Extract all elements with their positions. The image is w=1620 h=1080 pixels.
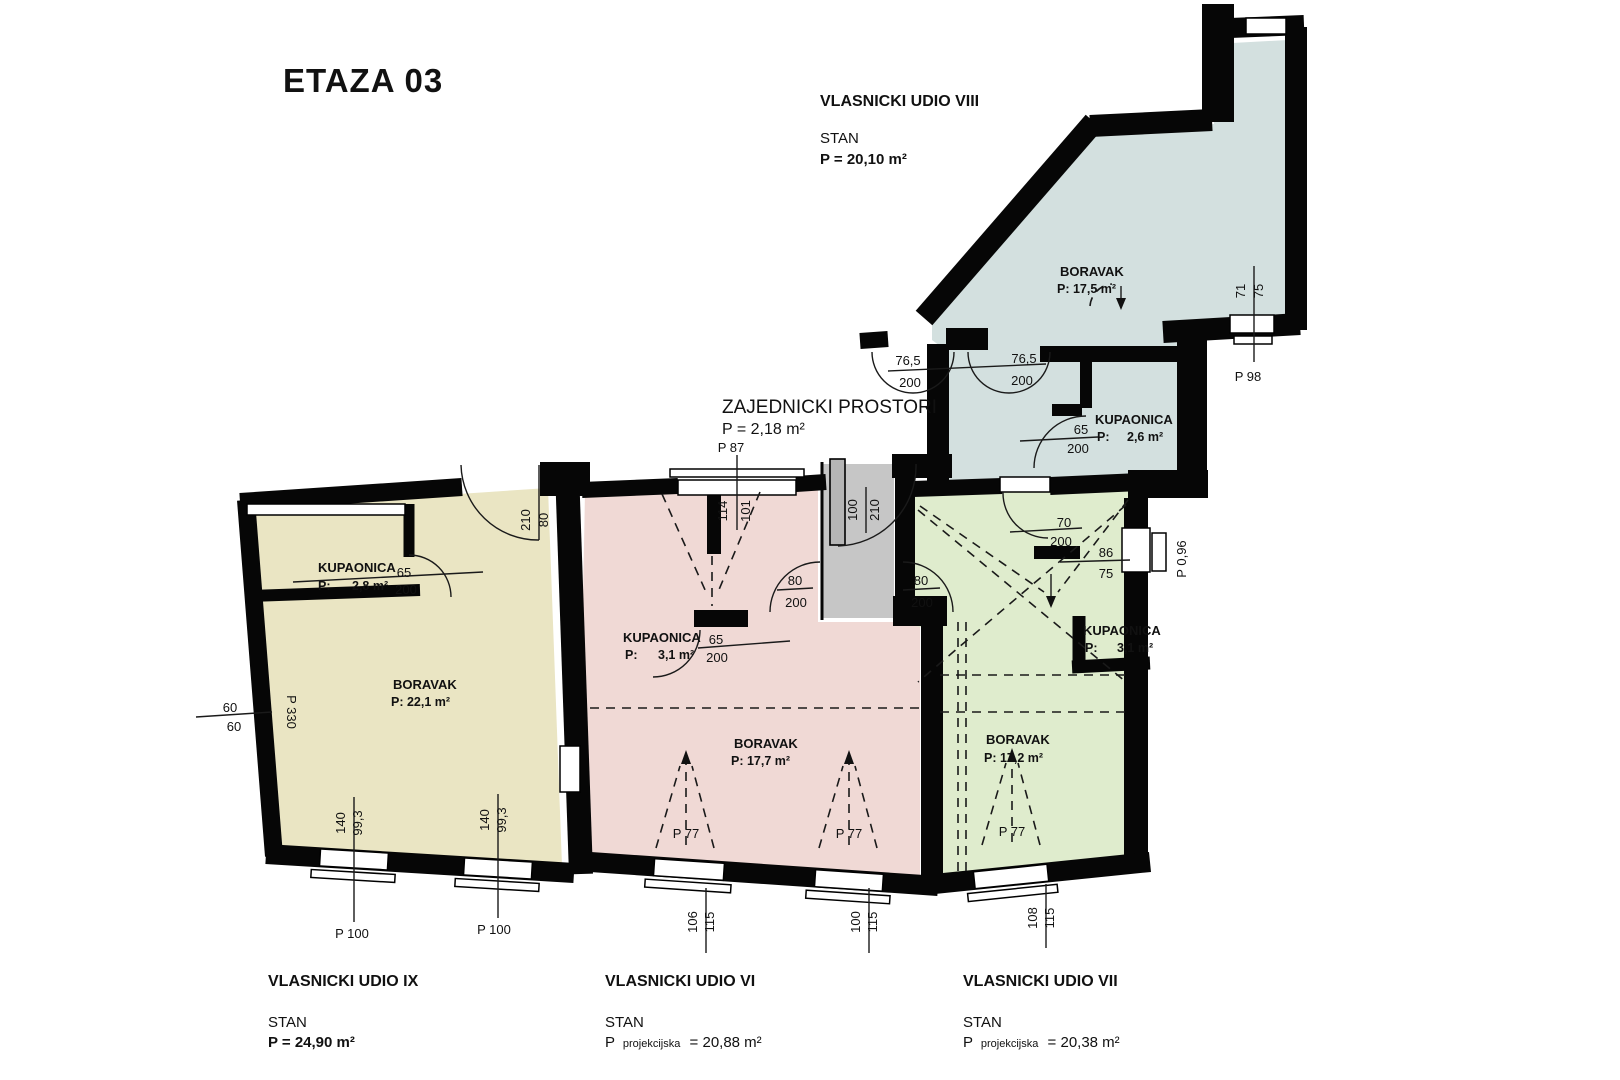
blue-kupaonica-p: P:	[1097, 430, 1110, 444]
dim-pink-roof2: P 77	[836, 826, 863, 841]
dim-pink-kup-door-w: 65	[709, 632, 723, 647]
dim-pink-kup-door-h: 200	[706, 650, 728, 665]
unit-viii-area: P = 20,10 m²	[820, 151, 907, 168]
blue-boravak-area: P: 17,5 m²	[1057, 282, 1116, 296]
window-blue-right	[1230, 315, 1274, 333]
dim-green-roof: P 77	[999, 824, 1026, 839]
dim-green-right-b: 75	[1099, 566, 1113, 581]
pink-kupaonica-label: KUPAONICA	[623, 630, 701, 645]
pink-boravak-label: BORAVAK	[734, 736, 798, 751]
dim-pink-win1-b: 115	[702, 912, 717, 933]
dim-green-kup-door-w: 70	[1057, 515, 1071, 530]
unit-vii-p: P	[963, 1034, 973, 1051]
wall-niche	[560, 746, 580, 792]
dim-entry-left-h: 200	[899, 375, 921, 390]
blue-boravak-label: BORAVAK	[1060, 264, 1124, 279]
unit-vi-p: P	[605, 1034, 615, 1051]
window-blue-top	[1246, 18, 1286, 34]
dim-corridor-door-w: 100	[845, 499, 860, 521]
dim-blue-win-p: P 98	[1235, 369, 1262, 384]
dim-yellow-win2-a: 140	[477, 809, 492, 831]
dim-green-win1-b: 115	[1042, 908, 1057, 929]
unit-vi-p-sub: projekcijska	[623, 1038, 681, 1050]
dim-blue-win-a: 71	[1233, 284, 1248, 298]
dim-top-win-a: 114	[715, 501, 730, 522]
dim-top-win-p: P 87	[718, 440, 745, 455]
dim-pink-door-w: 80	[788, 573, 802, 588]
dim-left-a: 60	[223, 700, 237, 715]
green-boravak-label: BORAVAK	[986, 732, 1050, 747]
pink-boravak-area: P: 17,7 m²	[731, 754, 790, 768]
corridor-door-leaf	[830, 459, 845, 545]
green-kupaonica-label: KUPAONICA	[1083, 623, 1161, 638]
dim-yellow-door-h: 210	[518, 509, 533, 531]
window-pink-1	[653, 859, 724, 881]
unit-vi-title: VLASNICKI UDIO VI	[605, 973, 755, 990]
dim-yellow-win1-a: 140	[333, 812, 348, 834]
dim-green-kup-door-h: 200	[1050, 534, 1072, 549]
dim-pink-win2-a: 100	[848, 911, 863, 933]
dim-blue-kup-door-w: 65	[1074, 422, 1088, 437]
blue-kupaonica-label: KUPAONICA	[1095, 412, 1173, 427]
yellow-kupaonica-label: KUPAONICA	[318, 560, 396, 575]
dim-green-win1-a: 108	[1025, 907, 1040, 929]
dim-green-right-a: 86	[1099, 545, 1113, 560]
dim-pink-win2-b: 115	[865, 912, 880, 933]
yellow-kupaonica-value: 2,8 m²	[352, 579, 388, 593]
dim-green-door-w: 80	[914, 573, 928, 588]
green-kupaonica-p: P:	[1085, 641, 1098, 655]
unit-vi-area: P projekcijska = 20,88 m²	[605, 1034, 762, 1051]
window-yellow-strip	[247, 504, 405, 515]
dim-left-b: 60	[227, 719, 241, 734]
green-kupaonica-value: 3,1 m²	[1117, 641, 1153, 655]
green-boravak-area: P: 17,2 m²	[984, 751, 1043, 765]
dim-pink-door-h: 200	[785, 595, 807, 610]
page-title: ETAZA 03	[283, 62, 443, 99]
unit-ix-type: STAN	[268, 1014, 307, 1031]
blue-kupaonica-value: 2,6 m²	[1127, 430, 1163, 444]
dim-yellow-kup-door-h: 200	[395, 582, 417, 597]
window-green-right	[1122, 528, 1150, 572]
dim-corridor-door-h: 210	[867, 499, 882, 521]
unit-vii-area: P projekcijska = 20,38 m²	[963, 1034, 1120, 1051]
dim-yellow-door-w: 80	[536, 513, 551, 527]
unit-vii-title: VLASNICKI UDIO VII	[963, 973, 1118, 990]
window-pink-2	[814, 870, 883, 891]
dim-green-right-p: P 0,96	[1174, 540, 1189, 577]
common-area-title: ZAJEDNICKI PROSTORI	[722, 397, 937, 418]
unit-viii-type: STAN	[820, 130, 859, 147]
dim-yellow-win1-b: 99,3	[350, 810, 365, 835]
dim-green-door-h: 200	[911, 595, 933, 610]
dim-yellow-win1-p: P 100	[335, 926, 369, 941]
dim-entry-right-w: 76,5	[1011, 351, 1036, 366]
unit-vi-type: STAN	[605, 1014, 644, 1031]
dim-yellow-kup-door-w: 65	[397, 565, 411, 580]
dim-yellow-win2-p: P 100	[477, 922, 511, 937]
yellow-boravak-label: BORAVAK	[393, 677, 457, 692]
dim-entry-right-h: 200	[1011, 373, 1033, 388]
yellow-boravak-area: P: 22,1 m²	[391, 695, 450, 709]
window-green-top	[1000, 477, 1050, 492]
unit-vi-p-value: = 20,88 m²	[690, 1034, 762, 1051]
dim-pink-win1-a: 106	[685, 911, 700, 933]
yellow-kupaonica-p: P:	[318, 579, 331, 593]
unit-vii-p-value: = 20,38 m²	[1048, 1034, 1120, 1051]
floor-plan-page: 76,5 200 76,5 200 100 210 80 200 80 200 …	[0, 0, 1620, 1080]
dim-blue-win-b: 75	[1251, 284, 1266, 298]
unit-viii-title: VLASNICKI UDIO VIII	[820, 93, 979, 110]
dim-yellow-win2-b: 99,3	[494, 807, 509, 832]
floor-plan-svg: 76,5 200 76,5 200 100 210 80 200 80 200 …	[0, 0, 1620, 1080]
dim-pink-roof1: P 77	[673, 826, 700, 841]
dim-blue-kup-door-h: 200	[1067, 441, 1089, 456]
unit-vii-p-sub: projekcijska	[981, 1038, 1039, 1050]
dim-left-p: P 330	[284, 695, 299, 729]
pink-kupaonica-p: P:	[625, 648, 638, 662]
dim-entry-left-w: 76,5	[895, 353, 920, 368]
unit-ix-area: P = 24,90 m²	[268, 1034, 355, 1051]
dim-top-win-b: 101	[738, 500, 753, 522]
pink-kupaonica-value: 3,1 m²	[658, 648, 694, 662]
common-area-value: P = 2,18 m²	[722, 421, 806, 438]
unit-ix-title: VLASNICKI UDIO IX	[268, 973, 419, 990]
unit-vii-type: STAN	[963, 1014, 1002, 1031]
